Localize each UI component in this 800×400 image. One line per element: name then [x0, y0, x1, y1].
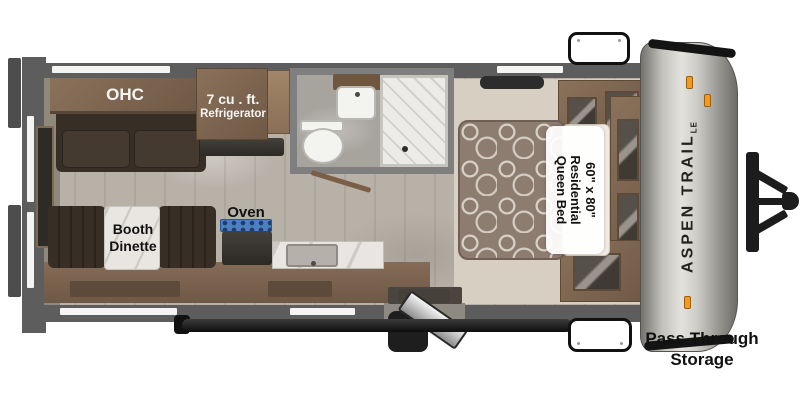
bed-label-line2: Residential — [568, 126, 583, 254]
shower-drain — [402, 146, 408, 152]
marker-light — [704, 94, 711, 107]
marker-light — [686, 76, 693, 89]
overhead-cabinet: OHC — [50, 78, 198, 114]
faucet-icon — [311, 261, 316, 266]
screw-dot — [618, 39, 621, 42]
brand-text: ASPEN TRAIL — [680, 133, 697, 273]
dinette-label-line2: Dinette — [105, 238, 161, 254]
wardrobe-glass-door — [617, 119, 639, 181]
pass-through-door-top — [568, 32, 630, 65]
bed-label: 60" x 80" Residential Queen Bed — [546, 126, 604, 254]
cabinet-panel — [268, 281, 332, 297]
refrigerator-base — [200, 138, 284, 156]
rear-wall-window-upper — [27, 116, 34, 202]
cabinet-panel — [70, 281, 180, 297]
kitchen-window — [290, 308, 355, 315]
rear-bumper-top — [8, 58, 21, 128]
bathroom-sink — [336, 86, 376, 120]
toilet — [302, 128, 344, 164]
oven-range — [222, 231, 272, 265]
sofa-window — [52, 66, 170, 73]
sofa-cushion — [134, 130, 200, 168]
pass-through-label-line1: Pass Through — [632, 328, 772, 349]
dinette-table: Booth Dinette — [104, 206, 160, 270]
roof-vent — [480, 76, 544, 89]
refrigerator-label-line2: Refrigerator — [197, 108, 269, 122]
screw-dot — [620, 342, 623, 345]
pass-through-label-line2: Storage — [632, 349, 772, 370]
marker-light — [684, 296, 691, 309]
refrigerator-side-panel — [266, 70, 290, 134]
refrigerator: 7 cu . ft. Refrigerator — [196, 68, 268, 140]
brand-logo: ASPEN TRAILLE — [680, 121, 699, 273]
dinette-label-line1: Booth — [105, 221, 161, 237]
shower — [380, 75, 448, 167]
rear-wall-window-lower — [27, 212, 34, 288]
awning-tube — [182, 319, 572, 332]
faucet-icon — [355, 92, 360, 97]
dinette-bench-left — [48, 206, 106, 268]
pass-through-label: Pass Through Storage — [632, 328, 772, 371]
hitch-coupler — [782, 192, 799, 210]
bed-label-line1: 60" x 80" — [582, 126, 597, 254]
brand-suffix-text: LE — [690, 121, 699, 133]
rear-bumper-bottom — [8, 205, 21, 297]
pass-through-door-bottom — [568, 318, 632, 352]
screw-dot — [577, 39, 580, 42]
dinette-bench-right — [158, 206, 216, 268]
screw-dot — [577, 342, 580, 345]
sofa-cushion — [62, 130, 130, 168]
refrigerator-label-line1: 7 cu . ft. — [197, 91, 269, 108]
bedroom-window — [497, 66, 563, 73]
kitchen-sink — [286, 244, 338, 267]
bed-label-line3: Queen Bed — [553, 126, 568, 254]
cabinet-glass-door — [573, 253, 621, 291]
ohc-label: OHC — [80, 85, 170, 105]
floorplan-canvas: OHC 7 cu . ft. Refrigerator Oven Booth D… — [0, 0, 800, 400]
dinette-window — [60, 308, 177, 315]
